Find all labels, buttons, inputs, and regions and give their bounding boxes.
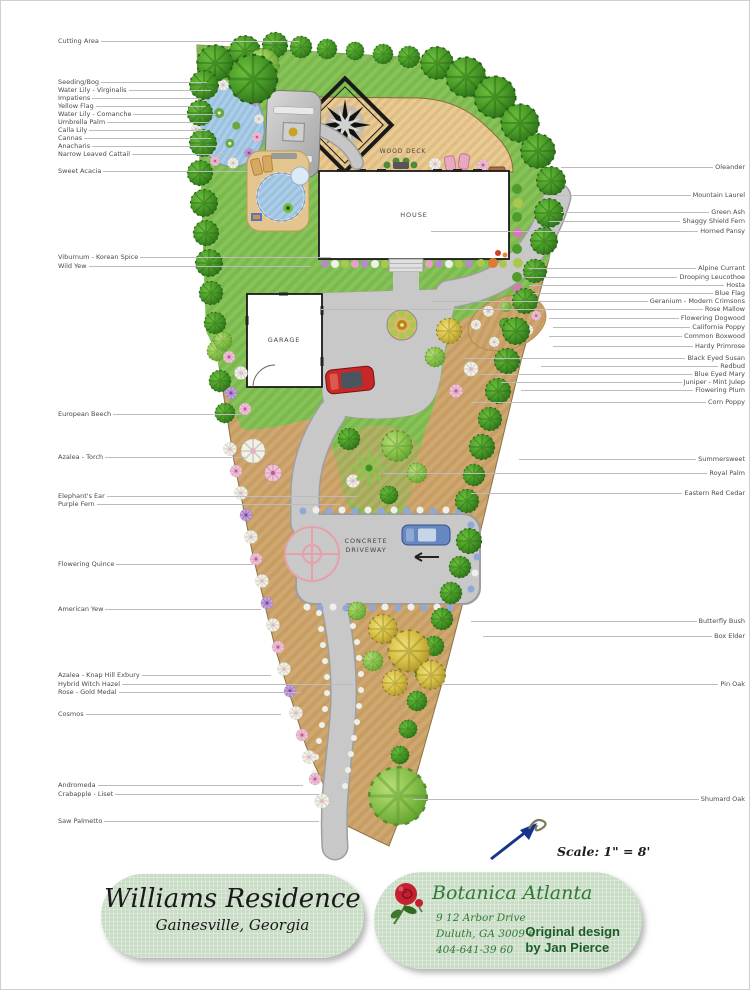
site-plan-drawing (1, 1, 750, 871)
phone-number: 404-641-39 60 (436, 942, 535, 958)
designer-block: Botanica Atlanta 9 12 Arbor Drive Duluth… (374, 872, 642, 969)
company-name: Botanica Atlanta (432, 882, 592, 904)
residence-name: Williams Residence (101, 884, 364, 914)
red-car (325, 366, 375, 395)
address-line2: Duluth, GA 3009 6 (436, 926, 535, 942)
title-block: Williams Residence Gainesville, Georgia (101, 874, 364, 958)
company-address: 9 12 Arbor Drive Duluth, GA 3009 6 404-6… (436, 910, 535, 958)
north-arrow-icon (491, 820, 546, 859)
front-steps (389, 259, 423, 272)
credit-line2: by Jan Pierce (525, 940, 620, 956)
pool-area (247, 151, 309, 231)
blue-car (402, 525, 450, 545)
driveway-label-line1: CONCRETE (342, 537, 390, 546)
landscape-plan-page: Cutting AreaSeeding/BogWater Lily - Virg… (0, 0, 750, 990)
residence-location: Gainesville, Georgia (101, 916, 364, 934)
driveway-label-line2: DRIVEWAY (342, 546, 390, 555)
pink-shrub (265, 465, 282, 482)
scale-note: Scale: 1" = 8' (557, 844, 650, 859)
turning-circle (285, 527, 339, 581)
round-planter (387, 310, 417, 340)
driveway-label: CONCRETE DRIVEWAY (342, 537, 390, 555)
wood-deck-label: WOOD DECK (372, 148, 434, 155)
front-walk (393, 272, 419, 292)
large-white-shrub (241, 439, 265, 463)
address-line1: 9 12 Arbor Drive (436, 910, 535, 926)
design-credit: Original design by Jan Pierce (525, 924, 620, 956)
credit-line1: Original design (525, 924, 620, 940)
rose-icon (386, 880, 430, 928)
garage-label: GARAGE (264, 336, 304, 344)
house-label: HOUSE (394, 211, 434, 219)
